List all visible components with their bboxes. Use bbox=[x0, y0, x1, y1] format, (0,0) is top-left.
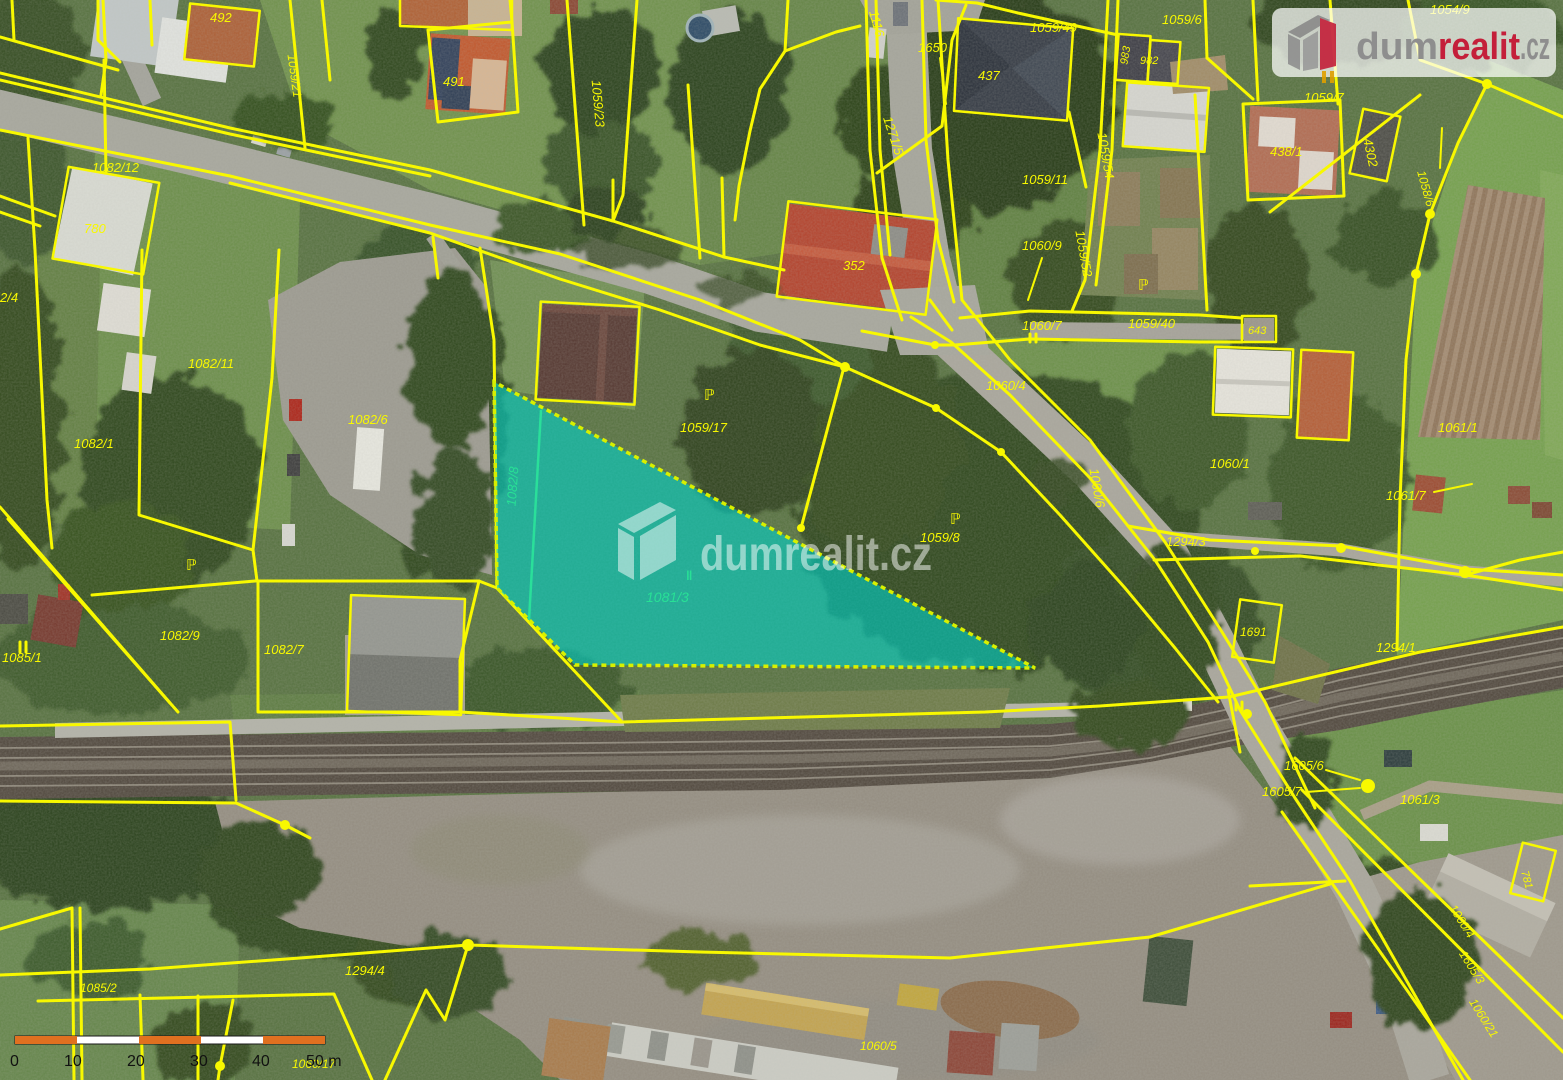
svg-text:dum: dum bbox=[1356, 26, 1438, 68]
svg-text:1059/6: 1059/6 bbox=[1162, 12, 1203, 27]
svg-text:1060/7: 1060/7 bbox=[1022, 318, 1063, 333]
svg-text:1082/8: 1082/8 bbox=[504, 465, 522, 506]
svg-text:1060/9: 1060/9 bbox=[1022, 238, 1062, 253]
svg-text:2/4: 2/4 bbox=[0, 290, 18, 305]
svg-text:1082/9: 1082/9 bbox=[160, 628, 200, 643]
svg-text:437: 437 bbox=[978, 68, 1000, 83]
svg-text:20: 20 bbox=[127, 1053, 145, 1070]
svg-text:dumrealit.cz: dumrealit.cz bbox=[700, 528, 932, 581]
svg-text:780: 780 bbox=[84, 221, 106, 236]
svg-text:1082/7: 1082/7 bbox=[264, 642, 305, 657]
svg-text:1605/6: 1605/6 bbox=[1284, 758, 1325, 773]
svg-text:ℙ: ℙ bbox=[1138, 277, 1149, 294]
svg-text:643: 643 bbox=[1248, 325, 1267, 337]
svg-text:1082/12: 1082/12 bbox=[92, 160, 140, 175]
svg-text:1294/4: 1294/4 bbox=[345, 963, 385, 978]
svg-text:1294/3: 1294/3 bbox=[1166, 534, 1207, 549]
svg-text:1082/11: 1082/11 bbox=[188, 356, 234, 371]
svg-text:1061/7: 1061/7 bbox=[1386, 488, 1427, 503]
svg-text:352: 352 bbox=[843, 258, 865, 273]
svg-text:1294/1: 1294/1 bbox=[1376, 640, 1416, 655]
svg-text:1650: 1650 bbox=[918, 40, 948, 55]
svg-text:982: 982 bbox=[1140, 55, 1158, 67]
svg-text:491: 491 bbox=[443, 74, 465, 89]
svg-text:0: 0 bbox=[10, 1053, 19, 1070]
svg-text:1059/7: 1059/7 bbox=[1304, 90, 1345, 105]
svg-text:30: 30 bbox=[190, 1053, 208, 1070]
svg-text:ℙ: ℙ bbox=[950, 511, 961, 528]
svg-text:492: 492 bbox=[210, 10, 232, 25]
svg-text:.cz: .cz bbox=[1520, 26, 1550, 68]
svg-text:1081/3: 1081/3 bbox=[646, 589, 689, 605]
svg-text:1059/40: 1059/40 bbox=[1128, 316, 1176, 331]
svg-text:1085/1: 1085/1 bbox=[2, 650, 42, 665]
svg-text:1061/1: 1061/1 bbox=[1438, 420, 1478, 435]
svg-text:50 m: 50 m bbox=[306, 1053, 342, 1070]
svg-text:1059/17: 1059/17 bbox=[680, 420, 728, 435]
svg-text:1060/5: 1060/5 bbox=[860, 1039, 897, 1053]
svg-text:438/1: 438/1 bbox=[1270, 144, 1303, 159]
svg-text:ℙ: ℙ bbox=[704, 387, 715, 404]
svg-text:1060/4: 1060/4 bbox=[986, 378, 1026, 393]
svg-text:10: 10 bbox=[64, 1053, 82, 1070]
svg-text:40: 40 bbox=[252, 1053, 270, 1070]
svg-text:1085/2: 1085/2 bbox=[80, 981, 117, 995]
svg-text:1059/11: 1059/11 bbox=[1022, 172, 1068, 187]
svg-text:realit: realit bbox=[1438, 26, 1520, 68]
svg-text:1059/49: 1059/49 bbox=[1030, 20, 1077, 35]
svg-text:1060/1: 1060/1 bbox=[1210, 456, 1250, 471]
svg-text:ℙ: ℙ bbox=[186, 557, 197, 574]
svg-text:‖: ‖ bbox=[686, 568, 692, 583]
svg-text:1691: 1691 bbox=[1240, 625, 1267, 639]
svg-text:1082/6: 1082/6 bbox=[348, 412, 389, 427]
svg-text:1061/3: 1061/3 bbox=[1400, 792, 1441, 807]
svg-text:1082/1: 1082/1 bbox=[74, 436, 114, 451]
svg-text:1605/7: 1605/7 bbox=[1262, 784, 1303, 799]
